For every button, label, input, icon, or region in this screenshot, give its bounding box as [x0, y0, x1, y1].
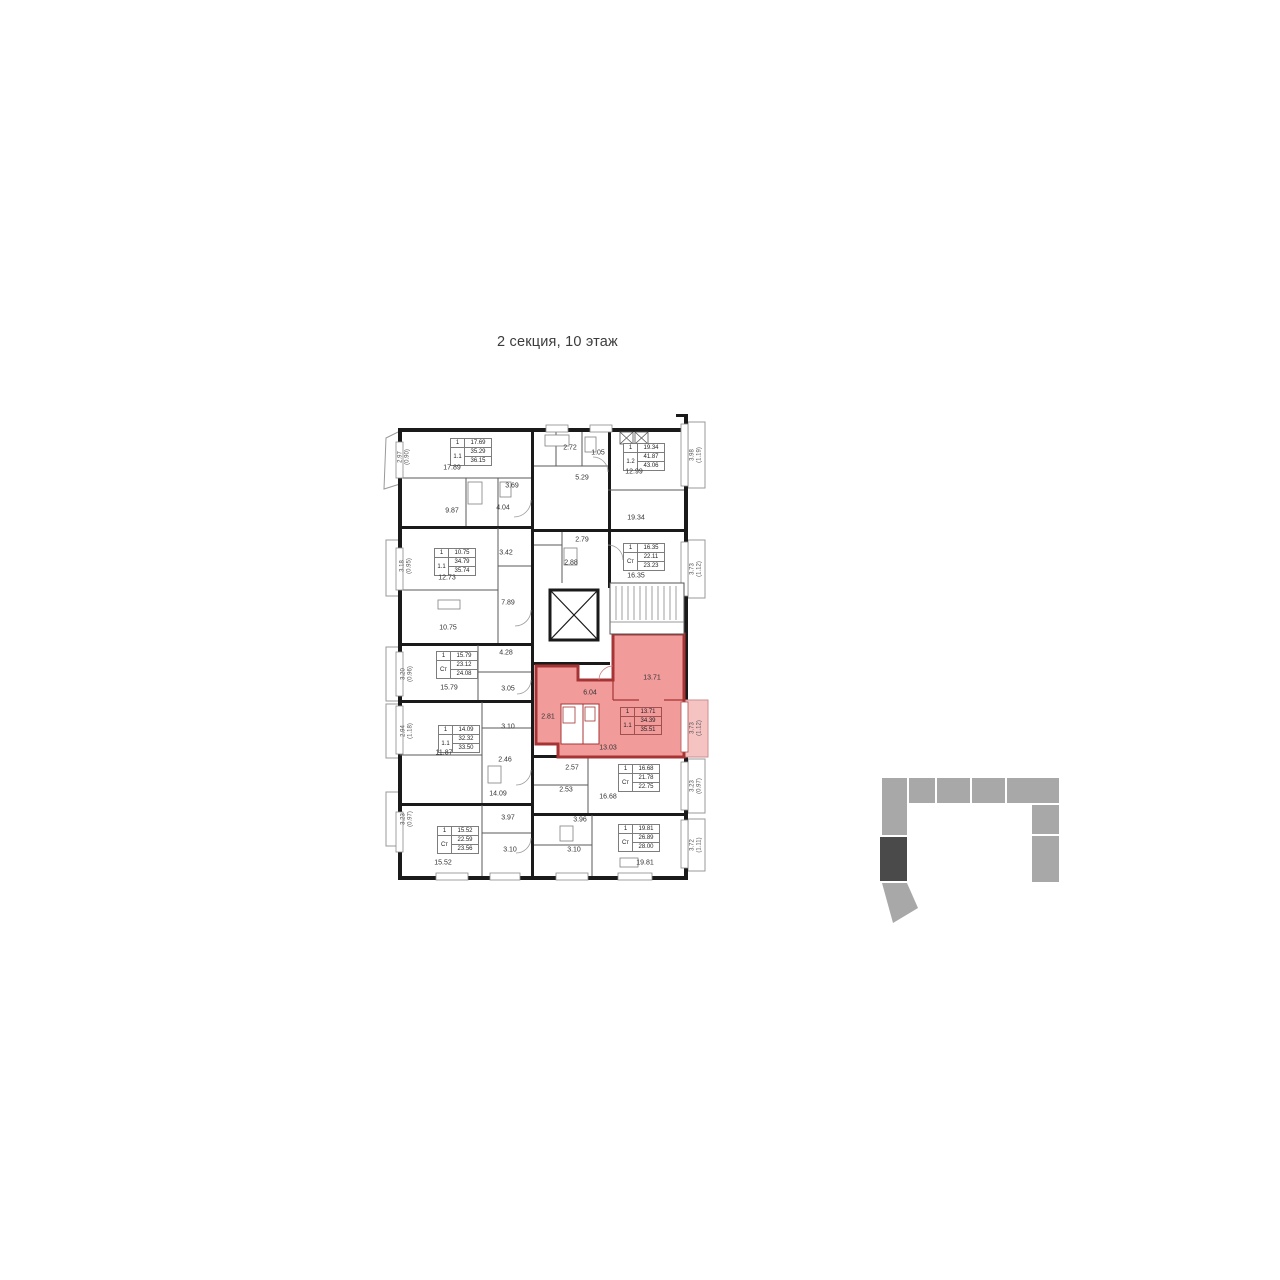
type-cell: Ст — [619, 834, 633, 852]
balcony-label: 3.18 (0.95) — [400, 558, 413, 574]
type-cell: Ст — [437, 661, 451, 679]
rooms-count-cell: 1 — [435, 549, 449, 558]
total-area-cell: 36.15 — [465, 457, 492, 466]
key-plan-block[interactable] — [937, 778, 970, 803]
balcony-coef: (0.97) — [407, 811, 414, 827]
area-cell: 34.39 — [635, 717, 662, 726]
toilet-icon — [560, 826, 573, 841]
rooms-count-cell: 1 — [437, 652, 451, 661]
living-area-cell: 10.75 — [449, 549, 476, 558]
living-area-cell: 15.52 — [452, 827, 479, 836]
key-plan-current-section[interactable] — [880, 837, 907, 881]
room-area-label: 4.04 — [496, 505, 510, 512]
key-plan-block[interactable] — [882, 778, 907, 835]
highlighted-apartment-bathroom — [561, 704, 599, 744]
balcony-coef: (0.90) — [404, 449, 411, 465]
apartment-table-r4[interactable]: 116.68 Ст21.78 22.75 — [618, 764, 660, 792]
room-area-label: 11.87 — [436, 750, 453, 757]
floor-plan-page: 2 секция, 10 этаж 117.69 1.135.29 36.15 … — [0, 0, 1280, 1280]
apartment-table-l3[interactable]: 115.79 Ст23.12 24.08 — [436, 651, 478, 679]
room-area-label: 2.88 — [564, 560, 578, 567]
type-cell: 1.1 — [451, 448, 465, 466]
room-area-label: 4.28 — [499, 650, 513, 657]
area-cell: 22.11 — [638, 553, 665, 562]
total-area-cell: 35.51 — [635, 726, 662, 735]
rooms-count-cell: 1 — [438, 827, 452, 836]
area-cell: 23.12 — [451, 661, 478, 670]
key-plan-block[interactable] — [909, 778, 935, 803]
rooms-count-cell: 1 — [619, 765, 633, 774]
key-plan — [880, 778, 1059, 923]
type-cell: Ст — [619, 774, 633, 792]
room-area-label: 3.97 — [501, 815, 515, 822]
balcony-coef: (0.95) — [406, 558, 413, 574]
bathtub-icon — [468, 482, 482, 504]
highlighted-apartment-shape[interactable] — [536, 634, 684, 757]
room-area-label: 3.10 — [567, 847, 581, 854]
room-area-label: 2.57 — [565, 765, 579, 772]
living-area-cell: 13.71 — [635, 708, 662, 717]
room-area-label: 5.29 — [575, 475, 589, 482]
living-area-cell: 14.09 — [453, 726, 480, 735]
key-plan-block[interactable] — [1032, 836, 1059, 882]
balcony-label: 3.72 (1.11) — [690, 837, 703, 852]
rooms-count-cell: 1 — [621, 708, 635, 717]
key-plan-block[interactable] — [1007, 778, 1059, 803]
kitchen-counter-icon — [438, 600, 460, 609]
room-area-label: 2.81 — [541, 714, 555, 721]
key-plan-block[interactable] — [882, 883, 918, 923]
room-area-label: 3.42 — [499, 550, 513, 557]
room-area-label: 19.34 — [627, 515, 645, 522]
room-area-label: 13.71 — [643, 675, 661, 682]
apartment-table-l2[interactable]: 110.75 1.134.79 35.74 — [434, 548, 476, 576]
total-area-cell: 23.56 — [452, 845, 479, 854]
area-cell: 22.59 — [452, 836, 479, 845]
balcony-label: 2.97 (0.90) — [398, 449, 411, 465]
balcony-coef: (1.11) — [696, 837, 703, 852]
living-area-cell: 19.34 — [638, 444, 665, 453]
balconies-left — [384, 431, 400, 846]
room-area-label: 2.53 — [559, 787, 573, 794]
balcony-label: 3.73 (1.12) — [690, 720, 703, 736]
room-area-label: 7.89 — [501, 600, 515, 607]
area-cell: 32.32 — [453, 735, 480, 744]
page-title: 2 секция, 10 этаж — [497, 334, 618, 350]
room-area-label: 3.96 — [573, 817, 587, 824]
room-area-label: 14.09 — [489, 791, 507, 798]
balcony-coef: (0.97) — [696, 778, 703, 794]
area-cell: 21.78 — [633, 774, 660, 783]
balcony-coef: (1.19) — [696, 447, 703, 463]
room-area-label: 3.10 — [503, 847, 517, 854]
room-area-label: 10.75 — [439, 625, 457, 632]
floor-plan-svg — [0, 0, 1280, 1280]
rooms-count-cell: 1 — [451, 439, 465, 448]
rooms-count-cell: 1 — [439, 726, 453, 735]
shower-icon — [488, 766, 501, 783]
balcony-coef: (0.96) — [407, 666, 414, 682]
total-area-cell: 24.08 — [451, 670, 478, 679]
type-cell: Ст — [624, 553, 638, 571]
balcony-coef: (1.12) — [696, 720, 703, 736]
room-area-label: 12.99 — [625, 469, 643, 476]
balcony-label: 3.23 (0.97) — [401, 811, 414, 827]
living-area-cell: 16.35 — [638, 544, 665, 553]
apartment-table-r2[interactable]: 116.35 Ст22.11 23.23 — [623, 543, 665, 571]
total-area-cell: 23.23 — [638, 562, 665, 571]
total-area-cell: 28.00 — [633, 843, 660, 852]
door-arc — [599, 666, 613, 680]
rooms-count-cell: 1 — [624, 544, 638, 553]
room-area-label: 16.68 — [599, 794, 617, 801]
area-cell: 35.29 — [465, 448, 492, 457]
area-cell: 34.79 — [449, 558, 476, 567]
living-area-cell: 17.69 — [465, 439, 492, 448]
room-area-label: 13.03 — [599, 745, 617, 752]
room-area-label: 17.89 — [443, 465, 461, 472]
room-area-label: 12.73 — [438, 575, 456, 582]
living-area-cell: 15.79 — [451, 652, 478, 661]
room-area-label: 15.52 — [434, 860, 452, 867]
key-plan-block[interactable] — [1032, 805, 1059, 834]
room-area-label: 2.79 — [575, 537, 589, 544]
stairs — [610, 583, 684, 634]
rooms-count-cell: 1 — [619, 825, 633, 834]
room-area-label: 19.81 — [636, 860, 654, 867]
room-area-label: 2.72 — [563, 445, 577, 452]
room-area-label: 15.79 — [440, 685, 458, 692]
area-cell: 41.87 — [638, 453, 665, 462]
apartment-table-l1[interactable]: 117.69 1.135.29 36.15 — [450, 438, 492, 466]
room-area-label: 6.04 — [583, 690, 597, 697]
rooms-count-cell: 1 — [624, 444, 638, 453]
type-cell: 1.1 — [621, 717, 635, 735]
balconies-right — [688, 422, 705, 871]
balcony-label: 3.23 (0.97) — [690, 778, 703, 794]
apartment-table-r3-highlighted[interactable]: 113.71 1.134.39 35.51 — [620, 707, 662, 735]
living-area-cell: 16.68 — [633, 765, 660, 774]
type-cell: 1.1 — [435, 558, 449, 576]
key-plan-block[interactable] — [972, 778, 1005, 803]
balcony-coef: (1.12) — [696, 561, 703, 577]
room-area-label: 3.05 — [501, 686, 515, 693]
apartment-table-r1[interactable]: 119.34 1.241.87 43.06 — [623, 443, 665, 471]
apartment-table-r5[interactable]: 119.81 Ст26.89 28.00 — [618, 824, 660, 852]
balcony-coef: (1.18) — [407, 723, 414, 739]
area-cell: 26.89 — [633, 834, 660, 843]
living-area-cell: 19.81 — [633, 825, 660, 834]
room-area-label: 2.46 — [498, 757, 512, 764]
room-area-label: 9.87 — [445, 508, 459, 515]
balcony-label: 3.98 (1.19) — [690, 447, 703, 463]
balcony-label: 3.73 (1.12) — [690, 561, 703, 577]
balcony-label: 2.94 (1.18) — [401, 723, 414, 739]
room-area-label: 3.69 — [505, 483, 519, 490]
total-area-cell: 33.50 — [453, 744, 480, 753]
apartment-table-l5[interactable]: 115.52 Ст22.59 23.56 — [437, 826, 479, 854]
balcony-label: 3.20 (0.96) — [401, 666, 414, 682]
room-area-label: 16.35 — [627, 573, 645, 580]
room-area-label: 1.05 — [591, 450, 605, 457]
elevator-shaft — [550, 590, 598, 640]
room-area-label: 3.10 — [501, 724, 515, 731]
type-cell: Ст — [438, 836, 452, 854]
total-area-cell: 22.75 — [633, 783, 660, 792]
